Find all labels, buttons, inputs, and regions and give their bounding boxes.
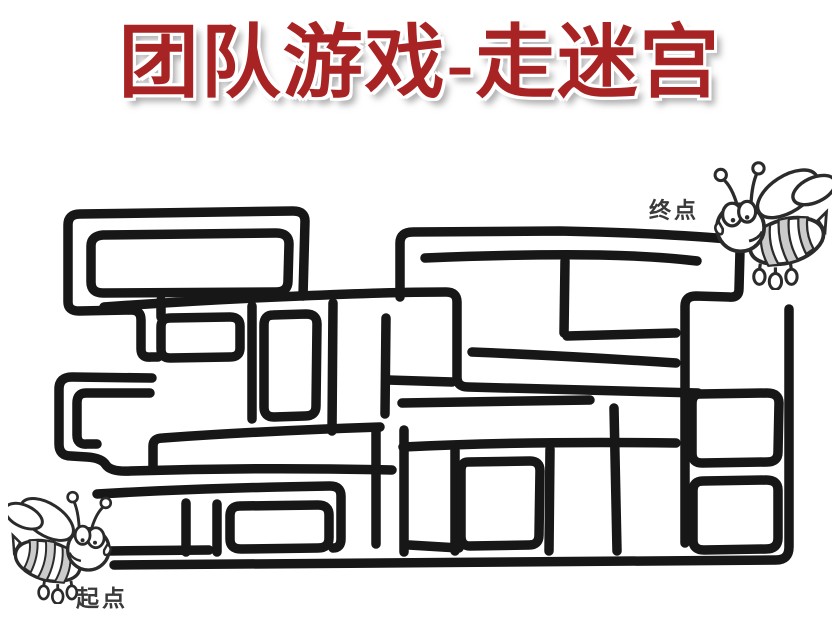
maze-walls xyxy=(59,211,789,565)
bee-end-icon xyxy=(715,160,840,289)
end-label: 终点 xyxy=(649,193,699,225)
slide: 团队游戏-走迷宫 xyxy=(0,0,840,618)
start-label: 起点 xyxy=(76,579,128,613)
maze-illustration xyxy=(0,0,840,618)
